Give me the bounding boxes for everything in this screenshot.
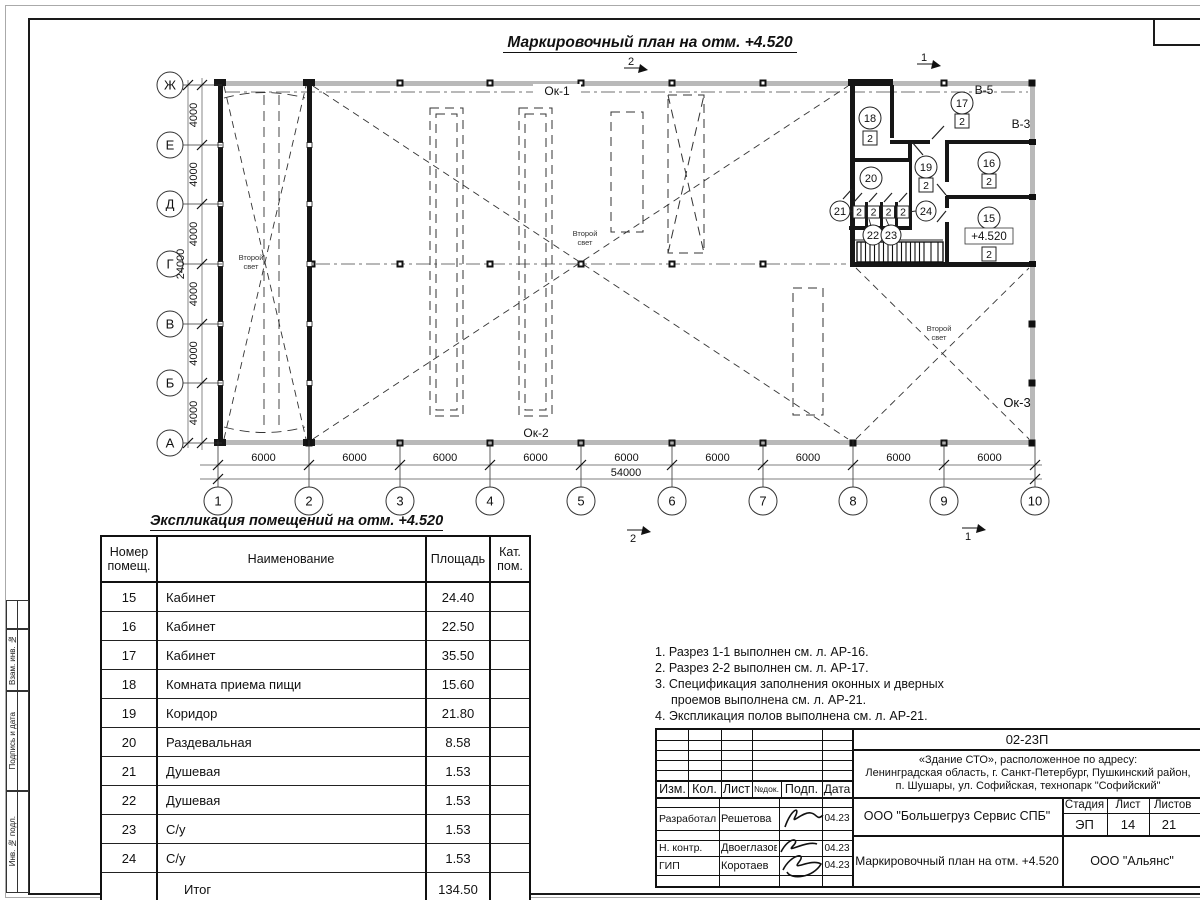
svg-text:4000: 4000: [188, 162, 200, 186]
col-list: Лист: [721, 780, 752, 797]
svg-text:Д: Д: [166, 197, 175, 212]
staff-name: Коротаев: [721, 856, 777, 875]
sheet-label: Лист: [1107, 797, 1149, 813]
svg-text:2: 2: [305, 494, 312, 509]
svg-text:4000: 4000: [188, 282, 200, 306]
cell-category: [490, 670, 530, 699]
svg-text:1: 1: [965, 531, 971, 543]
second-light-labels: Второйсвет Второйсвет Второйсвет: [239, 229, 952, 342]
col-header-number: Номер помещ.: [101, 536, 157, 582]
svg-text:А: А: [166, 436, 175, 451]
ok3-label: Ок-3: [1003, 395, 1030, 410]
svg-text:19: 19: [920, 162, 932, 174]
stage-label: Стадия: [1062, 797, 1107, 813]
schedule-header-row: Номер помещ. Наименование Площадь Кат. п…: [101, 536, 530, 582]
svg-text:10: 10: [1028, 494, 1042, 509]
signature: [781, 803, 825, 833]
stage-value: ЭП: [1062, 813, 1107, 835]
cell-category: [490, 873, 530, 900]
sheets-total: 21: [1149, 813, 1189, 835]
svg-text:6000: 6000: [433, 452, 457, 464]
svg-text:5: 5: [577, 494, 584, 509]
table-row: 20Раздевальная8.58: [101, 728, 530, 757]
cell-number: 20: [101, 728, 157, 757]
v3-label: В-3: [1012, 117, 1031, 131]
ok1-label: Ок-1: [544, 84, 570, 98]
svg-text:16: 16: [983, 158, 995, 170]
svg-text:9: 9: [940, 494, 947, 509]
svg-text:22: 22: [867, 230, 879, 242]
room-markers: 15 16 17 18 19 20 21 22 23 24 2: [830, 92, 1013, 261]
svg-text:Второй: Второй: [573, 229, 598, 238]
cell-name: Кабинет: [157, 582, 426, 612]
col-header-category: Кат. пом.: [490, 536, 530, 582]
svg-text:4000: 4000: [188, 341, 200, 365]
svg-text:3: 3: [396, 494, 403, 509]
roof-openings: [430, 95, 823, 416]
total-value: 134.50: [426, 873, 490, 900]
svg-text:2: 2: [923, 180, 929, 192]
table-row: 17Кабинет35.50: [101, 641, 530, 670]
elevation-value: +4.520: [971, 231, 1007, 243]
svg-text:2: 2: [871, 207, 877, 219]
table-row: 16Кабинет22.50: [101, 612, 530, 641]
svg-text:2: 2: [900, 207, 906, 219]
schedule-title: Экспликация помещений на отм. +4.520: [150, 513, 443, 529]
svg-text:6000: 6000: [796, 452, 820, 464]
address-line: п. Шушары, ул. Софийская, технопарк "Соф…: [865, 780, 1190, 793]
address-line: «Здание СТО», расположенное по адресу:: [865, 754, 1190, 767]
cell-area: 1.53: [426, 844, 490, 873]
cell-number: 19: [101, 699, 157, 728]
svg-text:4000: 4000: [188, 401, 200, 425]
svg-text:8: 8: [849, 494, 856, 509]
cell-name: Душевая: [157, 786, 426, 815]
col-header-area: Площадь: [426, 536, 490, 582]
svg-text:24: 24: [920, 206, 932, 218]
cell-number: 23: [101, 815, 157, 844]
svg-text:54000: 54000: [611, 467, 642, 479]
cell-number: 21: [101, 757, 157, 786]
sheets-label: Листов: [1149, 797, 1200, 813]
svg-text:23: 23: [885, 230, 897, 242]
cell-area: 1.53: [426, 815, 490, 844]
doc-code: 02-23П: [852, 730, 1200, 749]
svg-text:6000: 6000: [977, 452, 1001, 464]
sheet-number: 14: [1107, 813, 1149, 835]
table-row: 24С/у1.53: [101, 844, 530, 873]
signature: [777, 834, 827, 882]
table-row: 18Комната приема пищи15.60: [101, 670, 530, 699]
svg-text:1: 1: [921, 52, 927, 64]
col-ndok: №док.: [752, 780, 781, 797]
table-row: 19Коридор21.80: [101, 699, 530, 728]
cell-category: [490, 728, 530, 757]
svg-text:21: 21: [834, 206, 846, 218]
col-data: Дата: [822, 780, 852, 797]
svg-text:Е: Е: [166, 138, 175, 153]
axis-lines: [226, 92, 1028, 264]
ok2-label: Ок-2: [523, 426, 549, 440]
cell-name: С/у: [157, 815, 426, 844]
svg-text:6: 6: [668, 494, 675, 509]
svg-text:6000: 6000: [705, 452, 729, 464]
cell-number: 22: [101, 786, 157, 815]
cell-number: 15: [101, 582, 157, 612]
table-total-row: Итог134.50: [101, 873, 530, 900]
col-header-name: Наименование: [157, 536, 426, 582]
staff-role: Разработал: [659, 807, 717, 830]
staff-date: 04.23: [822, 807, 852, 830]
cell-area: 22.50: [426, 612, 490, 641]
table-row: 15Кабинет24.40: [101, 582, 530, 612]
svg-text:Второй: Второй: [239, 253, 264, 262]
col-kol: Кол.: [688, 780, 721, 797]
staff-name: Решетова: [721, 807, 777, 830]
svg-text:1: 1: [214, 494, 221, 509]
cell-name: Коридор: [157, 699, 426, 728]
svg-text:свет: свет: [243, 262, 259, 271]
cell-category: [490, 786, 530, 815]
svg-text:17: 17: [956, 98, 968, 110]
table-row: 23С/у1.53: [101, 815, 530, 844]
staff-name: Двоеглазов: [721, 840, 777, 856]
staff-role: ГИП: [659, 856, 717, 875]
notes: 1. Разрез 1-1 выполнен см. л. АР-16. 2. …: [655, 644, 944, 724]
note-line: 4. Экспликация полов выполнена см. л. АР…: [655, 708, 944, 724]
svg-text:24000: 24000: [175, 249, 187, 280]
cell-number: 18: [101, 670, 157, 699]
svg-text:свет: свет: [577, 238, 593, 247]
cell-name: Раздевальная: [157, 728, 426, 757]
doc-title: Маркировочный план на отм. +4.520: [852, 835, 1062, 886]
svg-text:18: 18: [864, 113, 876, 125]
svg-text:20: 20: [865, 173, 877, 185]
svg-text:2: 2: [630, 533, 636, 545]
cell-category: [490, 844, 530, 873]
svg-text:6000: 6000: [251, 452, 275, 464]
svg-text:2: 2: [986, 176, 992, 188]
cell-category: [490, 757, 530, 786]
svg-text:7: 7: [759, 494, 766, 509]
svg-text:6000: 6000: [886, 452, 910, 464]
cell-area: 1.53: [426, 757, 490, 786]
room-schedule-table: Номер помещ. Наименование Площадь Кат. п…: [100, 535, 531, 900]
table-row: 21Душевая1.53: [101, 757, 530, 786]
cell-area: 8.58: [426, 728, 490, 757]
cell-number: [101, 873, 157, 900]
svg-text:2: 2: [886, 207, 892, 219]
org2-name: ООО "Альянс": [1062, 835, 1200, 886]
table-row: 22Душевая1.53: [101, 786, 530, 815]
cell-category: [490, 699, 530, 728]
svg-text:2: 2: [628, 56, 634, 68]
cell-area: 1.53: [426, 786, 490, 815]
project-address: «Здание СТО», расположенное по адресу: Л…: [854, 749, 1200, 797]
cell-category: [490, 815, 530, 844]
svg-text:свет: свет: [931, 333, 947, 342]
section-marks: 2 1 2 1: [624, 52, 986, 545]
note-line: 2. Разрез 2-2 выполнен см. л. АР-17.: [655, 660, 944, 676]
total-label: Итог: [157, 873, 426, 900]
cell-name: Кабинет: [157, 612, 426, 641]
svg-text:6000: 6000: [523, 452, 547, 464]
svg-text:4: 4: [486, 494, 493, 509]
cell-area: 15.60: [426, 670, 490, 699]
svg-text:6000: 6000: [342, 452, 366, 464]
svg-text:Ж: Ж: [164, 78, 176, 93]
window-labels: Ок-1 Ок-2 Ок-3 В-5 В-3: [523, 83, 1030, 440]
address-line: Ленинградская область, г. Санкт-Петербур…: [865, 767, 1190, 780]
svg-text:Б: Б: [166, 376, 175, 391]
cell-number: 16: [101, 612, 157, 641]
svg-text:4000: 4000: [188, 222, 200, 246]
axis-letters: Ж Е Д Г В Б А: [157, 72, 222, 456]
note-line: 3. Спецификация заполнения оконных и две…: [655, 676, 944, 692]
svg-text:2: 2: [986, 249, 992, 261]
cell-number: 17: [101, 641, 157, 670]
cell-name: Душевая: [157, 757, 426, 786]
svg-text:6000: 6000: [614, 452, 638, 464]
svg-text:4000: 4000: [188, 103, 200, 127]
cell-area: 21.80: [426, 699, 490, 728]
cell-name: С/у: [157, 844, 426, 873]
svg-text:15: 15: [983, 213, 995, 225]
cell-category: [490, 641, 530, 670]
cell-number: 24: [101, 844, 157, 873]
title-block: Изм. Кол. Лист №док. Подп. Дата Разработ…: [655, 728, 1200, 888]
col-izm: Изм.: [657, 780, 688, 797]
cell-category: [490, 612, 530, 641]
svg-text:2: 2: [856, 207, 862, 219]
svg-text:В: В: [166, 317, 175, 332]
note-line: 1. Разрез 1-1 выполнен см. л. АР-16.: [655, 644, 944, 660]
cell-area: 35.50: [426, 641, 490, 670]
svg-text:Г: Г: [166, 257, 173, 272]
cell-name: Комната приема пищи: [157, 670, 426, 699]
cell-name: Кабинет: [157, 641, 426, 670]
svg-text:Второй: Второй: [927, 324, 952, 333]
v5-label: В-5: [975, 83, 994, 97]
svg-text:2: 2: [959, 116, 965, 128]
staff-role: Н. контр.: [659, 840, 717, 856]
cell-area: 24.40: [426, 582, 490, 612]
cell-category: [490, 582, 530, 612]
drawing-sheet: Взам. инв. № Подпись и дата Инв. № подл.…: [0, 0, 1200, 900]
note-line: проемов выполнена см. л. АР-21.: [655, 692, 944, 708]
col-podp: Подп.: [781, 780, 822, 797]
org-name: ООО "Большегруз Сервис СПБ": [852, 797, 1062, 835]
svg-text:2: 2: [867, 133, 873, 145]
